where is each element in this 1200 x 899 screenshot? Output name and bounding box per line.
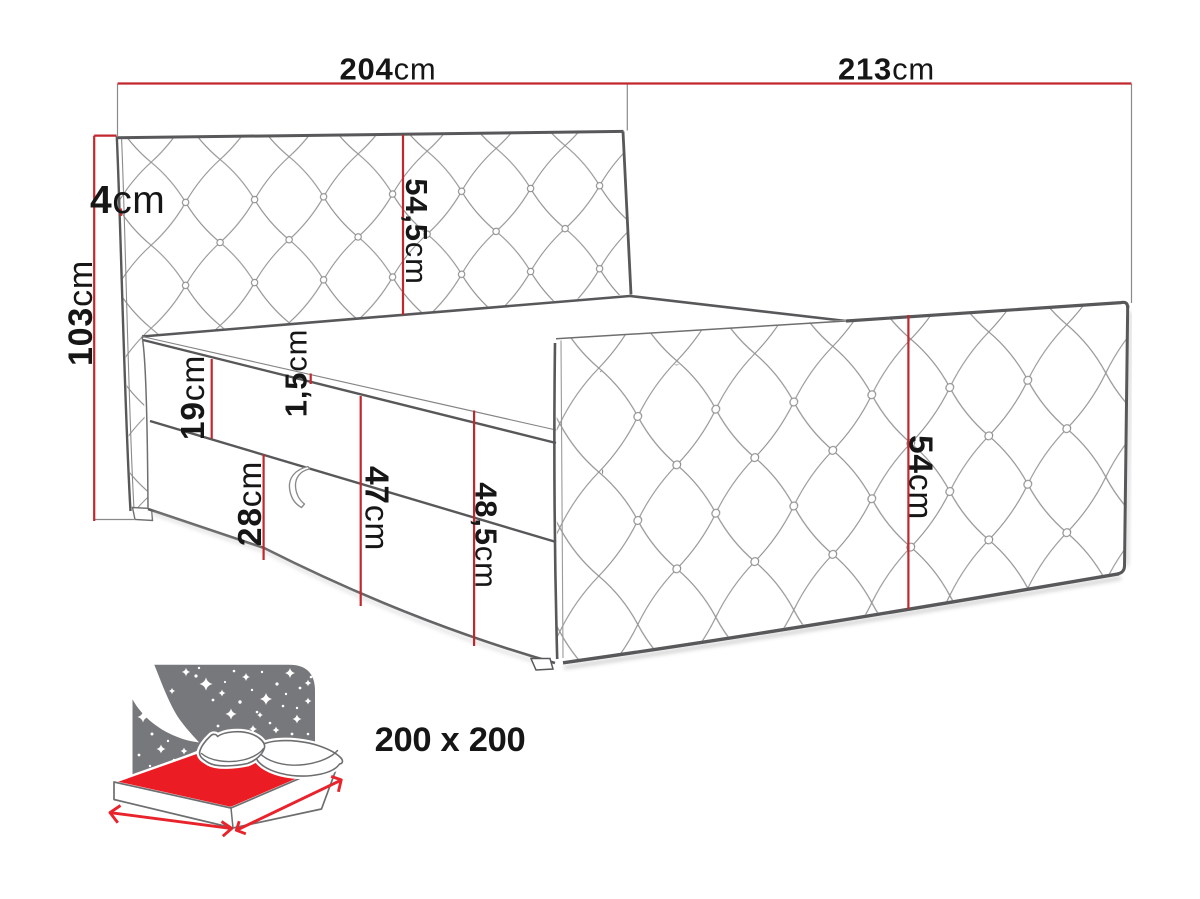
svg-text:19cm: 19cm: [175, 355, 212, 440]
svg-text:200 x 200: 200 x 200: [375, 721, 526, 759]
svg-text:47cm: 47cm: [358, 466, 395, 551]
svg-text:54cm: 54cm: [902, 435, 939, 520]
svg-text:48,5cm: 48,5cm: [469, 482, 504, 588]
svg-text:28cm: 28cm: [232, 461, 269, 546]
svg-text:213cm: 213cm: [838, 52, 935, 87]
svg-text:204cm: 204cm: [339, 52, 436, 87]
svg-text:103cm: 103cm: [62, 260, 100, 366]
svg-text:54,5cm: 54,5cm: [399, 178, 434, 284]
svg-text:4cm: 4cm: [90, 179, 165, 222]
svg-text:1,5cm: 1,5cm: [279, 329, 314, 417]
